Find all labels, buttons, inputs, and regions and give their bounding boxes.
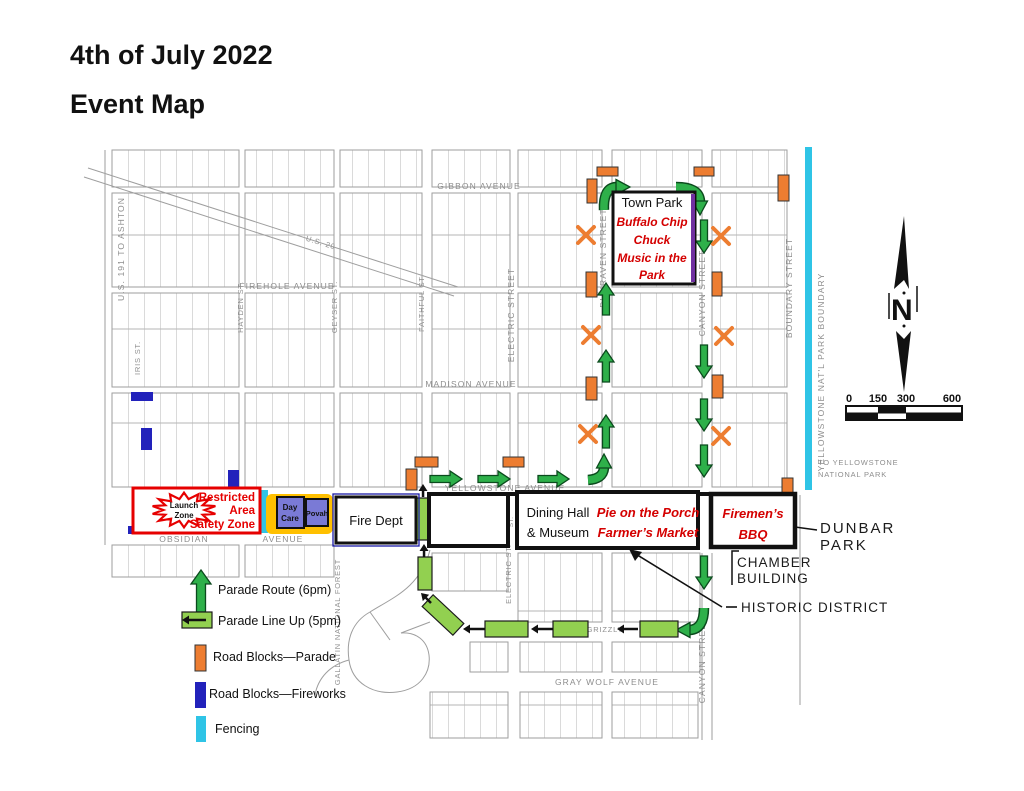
roadblock-fireworks (131, 392, 153, 401)
city-block (612, 692, 698, 738)
daycare-box (277, 497, 304, 528)
city-block (340, 293, 422, 387)
forest-lot-line1 (401, 622, 430, 633)
town-park-event-line: Chuck (634, 233, 672, 247)
pie-porch-label1: Pie on the Porch (597, 505, 700, 520)
city-block (612, 642, 700, 672)
dunbar-pointer-line (795, 527, 817, 530)
city-block (612, 150, 702, 187)
fire-dept-box: Fire Dept (333, 494, 419, 546)
legend-parade-lineup-label: Parade Line Up (5pm) (218, 614, 341, 628)
street-canyon: CANYON STREET (697, 250, 707, 337)
city-block (520, 692, 602, 738)
legend-fencing-label: Fencing (215, 722, 260, 736)
scale-bar-segment (846, 413, 878, 420)
city-block (518, 553, 602, 622)
scale-tick-150: 150 (869, 393, 887, 405)
roadblock-fireworks (141, 428, 152, 450)
event-map-canvas: GIBBON AVENUE FIREHOLE AVENUE MADISON AV… (0, 0, 1024, 791)
north-arrow-compass: N (889, 216, 917, 392)
street-boundary: BOUNDARY STREET (784, 238, 794, 338)
restricted-label3: Safety Zone (190, 519, 255, 531)
fencing-bar (196, 716, 206, 742)
compass-n-label: N (891, 294, 913, 327)
city-block (518, 293, 602, 387)
street-firehole: FIREHOLE AVENUE (239, 281, 334, 291)
city-block (112, 545, 239, 577)
street-madison: MADISON AVENUE (425, 379, 516, 389)
street-obsidian-avenue: AVENUE (263, 534, 304, 544)
restricted-label1: Restricted (199, 492, 255, 504)
city-block (432, 293, 510, 387)
city-block (112, 293, 239, 387)
strip-building-box (429, 494, 508, 546)
parade-lineup-bar (485, 621, 528, 637)
city-block (432, 193, 510, 287)
dining-hall-label2: & Museum (527, 525, 589, 540)
street-geyser: GEYSER ST. (330, 281, 339, 333)
restricted-safety-zone-box: Launch Zone Restricted Area Safety Zone (133, 488, 260, 533)
scale-tick-600: 600 (943, 393, 961, 405)
forest-lot-line2 (370, 612, 390, 640)
scale-tick-0: 0 (846, 393, 852, 405)
legend: Parade Route (6pm) Parade Line Up (5pm) … (209, 583, 346, 736)
daycare-label1: Day (283, 503, 298, 512)
street-faithful: FAITHFUL ST. (417, 274, 426, 332)
scale-bar-segment (878, 406, 906, 413)
city-block (712, 150, 787, 187)
city-block (245, 393, 334, 487)
roadblock-parade (195, 645, 206, 671)
street-electric: ELECTRIC STREET (506, 268, 516, 362)
compass-needle-bottom (896, 331, 911, 392)
lineup-direction-arrow (531, 625, 553, 634)
city-block (430, 692, 508, 738)
street-gray-wolf: GRAY WOLF AVENUE (555, 677, 659, 687)
chamber-label1: CHAMBER (737, 555, 812, 570)
town-park-title: Town Park (622, 195, 683, 210)
parade-lineup-bar (418, 557, 432, 590)
legend-roadblocks-parade-label: Road Blocks—Parade (213, 650, 336, 664)
roadblock-parade (406, 469, 417, 490)
roadblock-parade (778, 175, 789, 201)
roadblock-parade (712, 375, 723, 398)
label-to-park-line2: NATIONAL PARK (818, 470, 887, 479)
town-park-event-line: Buffalo Chip (616, 215, 687, 229)
label-to-park-line1: TO YELLOWSTONE (818, 458, 898, 467)
label-park-boundary: YELLOWSTONE NAT'L PARK BOUNDARY (816, 273, 826, 472)
roadblock-parade (597, 167, 618, 176)
city-block (112, 393, 239, 487)
compass-needle-top (894, 216, 909, 289)
parade-lineup-bar (553, 621, 588, 637)
firemens-bbq-label1: Firemen’s (722, 506, 783, 521)
chamber-label2: BUILDING (737, 571, 809, 586)
scale-tick-300: 300 (897, 393, 915, 405)
scale-bar: 0 150 300 600 (846, 393, 962, 420)
povah-label: Povah (306, 509, 329, 518)
dunbar-park-label2: PARK (820, 537, 868, 554)
historic-district-label: HISTORIC DISTRICT (741, 600, 888, 615)
roadblock-parade (586, 272, 597, 297)
city-block (432, 553, 508, 591)
city-block (340, 150, 422, 187)
street-gibbon: GIBBON AVENUE (437, 181, 521, 191)
city-block (245, 545, 334, 577)
fencing-bar (805, 147, 812, 490)
town-park-event-line: Park (639, 268, 666, 282)
legend-parade-route-label: Parade Route (6pm) (218, 583, 331, 597)
roadblock-parade (694, 167, 714, 176)
roadblock-parade (587, 179, 597, 203)
roadblock-fireworks (195, 682, 206, 708)
launch-zone-label1: Launch (170, 501, 199, 510)
street-us191: U.S. 191 TO ASHTON (116, 197, 126, 301)
city-block (245, 293, 334, 387)
legend-roadblocks-fireworks-label: Road Blocks—Fireworks (209, 687, 346, 701)
lineup-direction-arrow (463, 625, 485, 634)
daycare-povah-area: Day Care Povah (266, 494, 333, 534)
restricted-label2: Area (229, 505, 255, 517)
fire-dept-label: Fire Dept (349, 513, 403, 528)
roadblock-parade (503, 457, 524, 467)
town-park-event-line: Music in the (617, 251, 687, 265)
city-block (520, 642, 602, 672)
city-block (245, 150, 334, 187)
daycare-label2: Care (281, 514, 299, 523)
city-block (612, 553, 700, 622)
dining-hall-label1: Dining Hall (527, 505, 590, 520)
city-block (612, 293, 702, 387)
roadblock-parade (586, 377, 597, 400)
roadblock-parade (415, 457, 438, 467)
street-electric-lower: ELECTRIC ST. (504, 544, 513, 604)
event-map-page: 4th of July 2022 Event Map (0, 0, 1024, 791)
city-block (712, 293, 787, 387)
city-block (470, 642, 508, 672)
dunbar-park-label1: DUNBAR (820, 520, 895, 537)
town-park-box: Town Park Buffalo Chip Chuck Music in th… (613, 192, 695, 284)
firemens-bbq-label2: BBQ (739, 527, 768, 542)
town-park-purple-edge (691, 194, 695, 282)
street-iris: IRIS ST. (133, 341, 142, 375)
pie-porch-label2: Farmer’s Market (598, 525, 699, 540)
parade-lineup-bar (640, 621, 678, 637)
yellowstone-building-strip: Dining Hall & Museum Pie on the Porch Fa… (429, 492, 795, 548)
roadblock-parade (712, 272, 722, 296)
city-block (112, 193, 239, 287)
street-hayden: HAYDEN ST. (236, 281, 245, 333)
street-obsidian: OBSIDIAN (159, 534, 208, 544)
scale-bar-segment (906, 413, 962, 420)
city-block (612, 393, 702, 487)
